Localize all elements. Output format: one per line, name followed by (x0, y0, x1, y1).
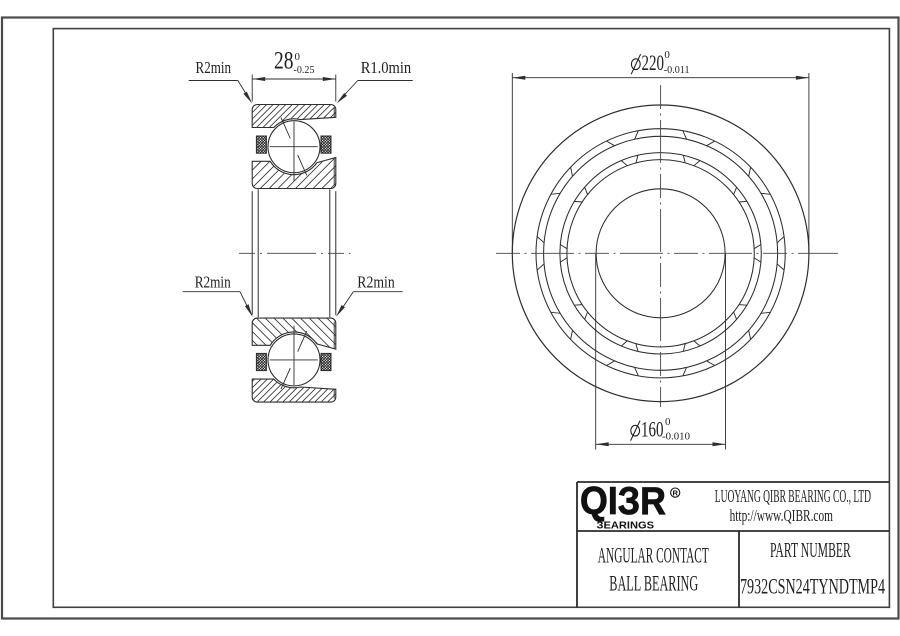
svg-text:0: 0 (295, 51, 301, 63)
svg-text:-0.010: -0.010 (662, 430, 690, 442)
svg-text:R2min: R2min (196, 58, 232, 77)
svg-text:PART NUMBER: PART NUMBER (770, 538, 851, 562)
svg-text:ANGULAR CONTACT: ANGULAR CONTACT (598, 543, 709, 568)
svg-text:QIЗR: QIЗR (580, 480, 666, 523)
svg-text:28: 28 (274, 47, 294, 74)
svg-text:LUOYANG QIBR BEARING CO., LTD: LUOYANG QIBR BEARING CO., LTD (715, 486, 871, 506)
svg-text:160: 160 (641, 417, 664, 442)
svg-text:R2min: R2min (357, 273, 395, 292)
svg-text:0: 0 (664, 49, 670, 61)
svg-text:-0.011: -0.011 (664, 64, 690, 76)
svg-text:ЗEARINGS: ЗEARINGS (597, 520, 655, 531)
svg-text:0: 0 (665, 416, 671, 428)
svg-text:R1.0min: R1.0min (361, 58, 412, 77)
svg-text:R2min: R2min (195, 273, 231, 292)
svg-text:-0.25: -0.25 (294, 64, 315, 76)
svg-text:BALL BEARING: BALL BEARING (609, 571, 698, 596)
svg-text:R: R (672, 488, 678, 497)
svg-text:7932CSN24TYNDTMP4: 7932CSN24TYNDTMP4 (740, 574, 885, 599)
svg-text:220: 220 (642, 50, 665, 75)
svg-text:http://www.QIBR.com: http://www.QIBR.com (730, 506, 833, 525)
